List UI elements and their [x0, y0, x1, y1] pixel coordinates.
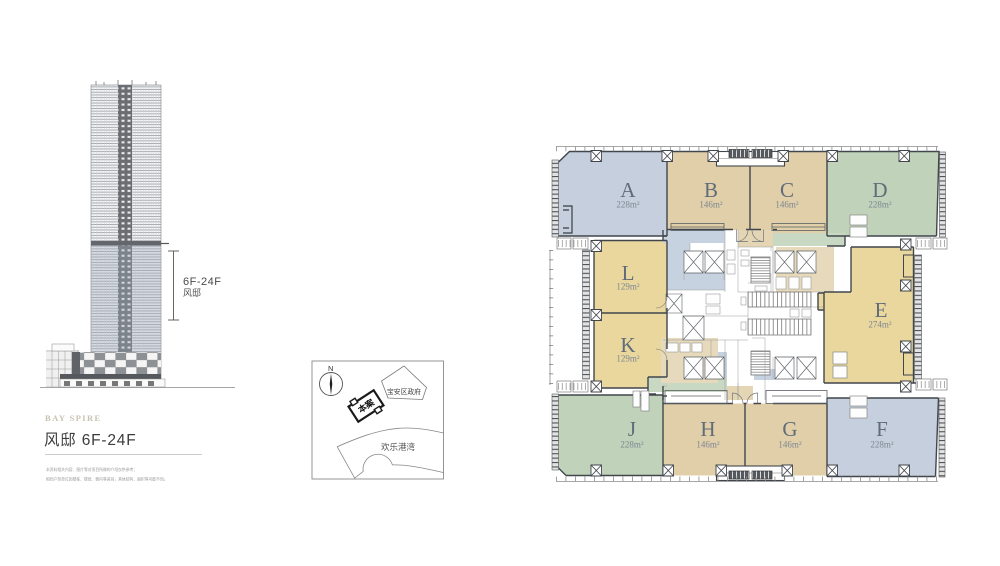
- svg-text:146m²: 146m²: [778, 440, 802, 450]
- svg-text:A: A: [620, 178, 636, 202]
- svg-text:6F-24F: 6F-24F: [183, 276, 221, 288]
- svg-text:本资料相关内容、图片等对项目所做的介绍仅供参考；: 本资料相关内容、图片等对项目所做的介绍仅供参考；: [46, 467, 137, 472]
- svg-text:风邸: 风邸: [183, 288, 201, 298]
- svg-text:146m²: 146m²: [696, 440, 720, 450]
- svg-text:宝安区政府: 宝安区政府: [387, 387, 421, 396]
- svg-text:B: B: [704, 178, 718, 202]
- svg-text:228m²: 228m²: [616, 200, 640, 210]
- svg-text:N: N: [328, 364, 333, 373]
- svg-text:D: D: [872, 178, 887, 202]
- svg-text:欢乐港湾: 欢乐港湾: [381, 442, 416, 452]
- svg-text:C: C: [780, 178, 794, 202]
- svg-text:F: F: [876, 417, 888, 441]
- svg-text:H: H: [700, 417, 715, 441]
- svg-text:风邸 6F-24F: 风邸 6F-24F: [44, 431, 136, 449]
- svg-text:146m²: 146m²: [775, 200, 799, 210]
- svg-text:228m²: 228m²: [868, 200, 892, 210]
- svg-text:J: J: [628, 417, 636, 441]
- svg-text:228m²: 228m²: [870, 440, 894, 450]
- svg-text:相同户型单位因楼栋、楼层、朝向等差别，具体结构、面积等可能不: 相同户型单位因楼栋、楼层、朝向等差别，具体结构、面积等可能不同。: [46, 477, 168, 482]
- svg-text:G: G: [782, 417, 797, 441]
- svg-text:BAY SPIRE: BAY SPIRE: [45, 413, 102, 423]
- svg-text:274m²: 274m²: [868, 320, 892, 330]
- svg-text:228m²: 228m²: [620, 440, 644, 450]
- svg-text:E: E: [875, 298, 888, 322]
- svg-text:129m²: 129m²: [616, 282, 640, 292]
- svg-text:129m²: 129m²: [616, 354, 640, 364]
- svg-text:146m²: 146m²: [699, 200, 723, 210]
